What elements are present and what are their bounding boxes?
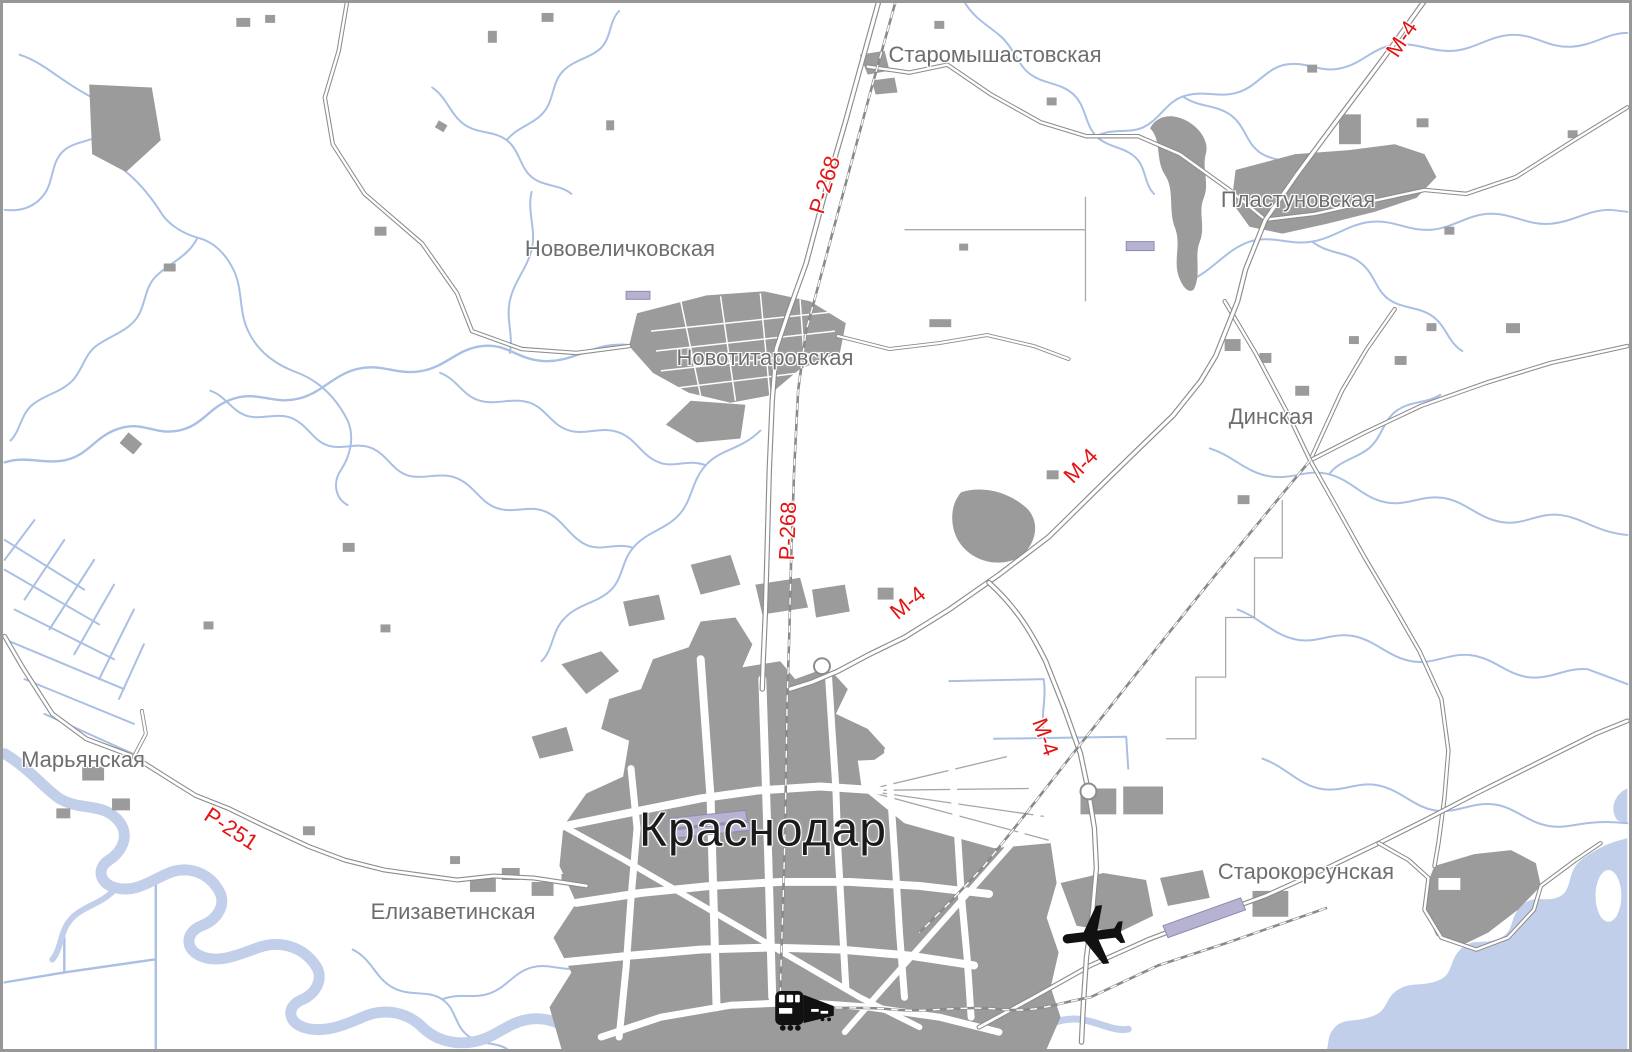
canal-grid <box>5 520 144 759</box>
map-geometry <box>3 3 1629 1049</box>
field-lines-layer <box>904 197 1282 739</box>
reservoir-island <box>1596 870 1622 922</box>
reservoir-bay <box>1613 788 1627 824</box>
map-canvas[interactable]: КраснодарСтаромышастовскаяПластуновскаяН… <box>0 0 1632 1052</box>
road-junction <box>1080 784 1096 800</box>
field-topleft <box>89 85 161 172</box>
road-junction <box>814 658 830 674</box>
